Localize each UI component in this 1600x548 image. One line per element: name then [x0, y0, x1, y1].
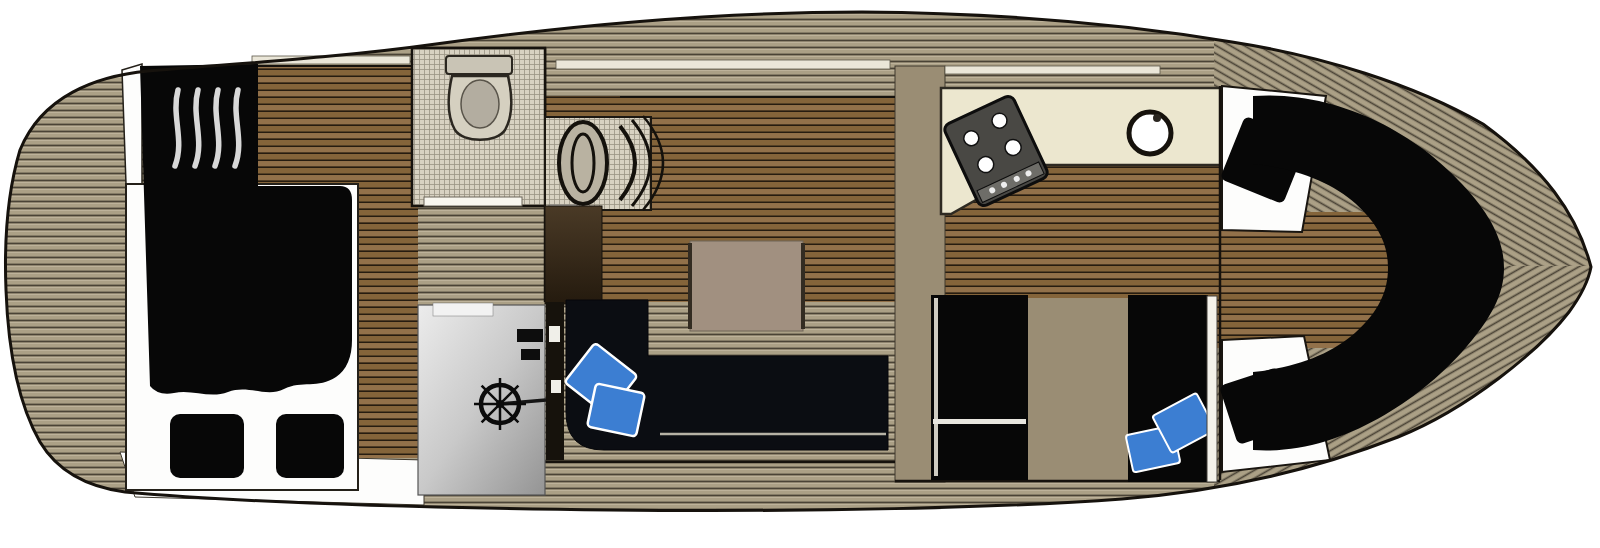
boat-floorplan-svg: [0, 0, 1600, 548]
steering-wheel-icon: [474, 378, 526, 430]
wardrobe-shelf: [933, 419, 1026, 424]
helm-seat: [545, 116, 663, 213]
boat-floorplan: [0, 0, 1600, 548]
bed-pillow-right: [276, 414, 344, 478]
wardrobe-edge: [934, 298, 938, 476]
toilet-icon: [446, 56, 512, 140]
window-strip: [945, 66, 1160, 74]
bow-bulkhead: [1207, 296, 1217, 482]
throttle-lever: [521, 349, 540, 360]
window-strip: [556, 60, 890, 69]
step-line: [175, 90, 179, 166]
mid-berth: [1126, 295, 1216, 482]
cabin-door-strip: [546, 302, 564, 460]
mid-cabin-floor: [1028, 298, 1128, 482]
bed-side-gap: [122, 64, 142, 184]
sink-icon: [1129, 112, 1171, 154]
wardrobe: [931, 295, 1028, 480]
door-hinge: [551, 380, 561, 393]
bed-pillow-left: [170, 414, 244, 478]
table-top: [690, 241, 803, 331]
step-line: [195, 90, 199, 166]
helm-console: [418, 303, 546, 495]
bathroom-threshold: [424, 197, 522, 206]
console-top-trim: [433, 303, 493, 316]
companionway-shadow: [545, 206, 602, 304]
door-hinge: [549, 326, 560, 342]
throttle-lever: [517, 329, 543, 342]
toilet-tank: [446, 56, 512, 74]
step-line: [235, 90, 239, 166]
toilet-seat: [461, 80, 499, 128]
salon-table: [690, 241, 803, 331]
step-line: [215, 90, 219, 166]
wardrobe-body: [931, 295, 1028, 480]
settee-pillow-2: [587, 383, 645, 436]
head-bathroom: [412, 48, 545, 206]
